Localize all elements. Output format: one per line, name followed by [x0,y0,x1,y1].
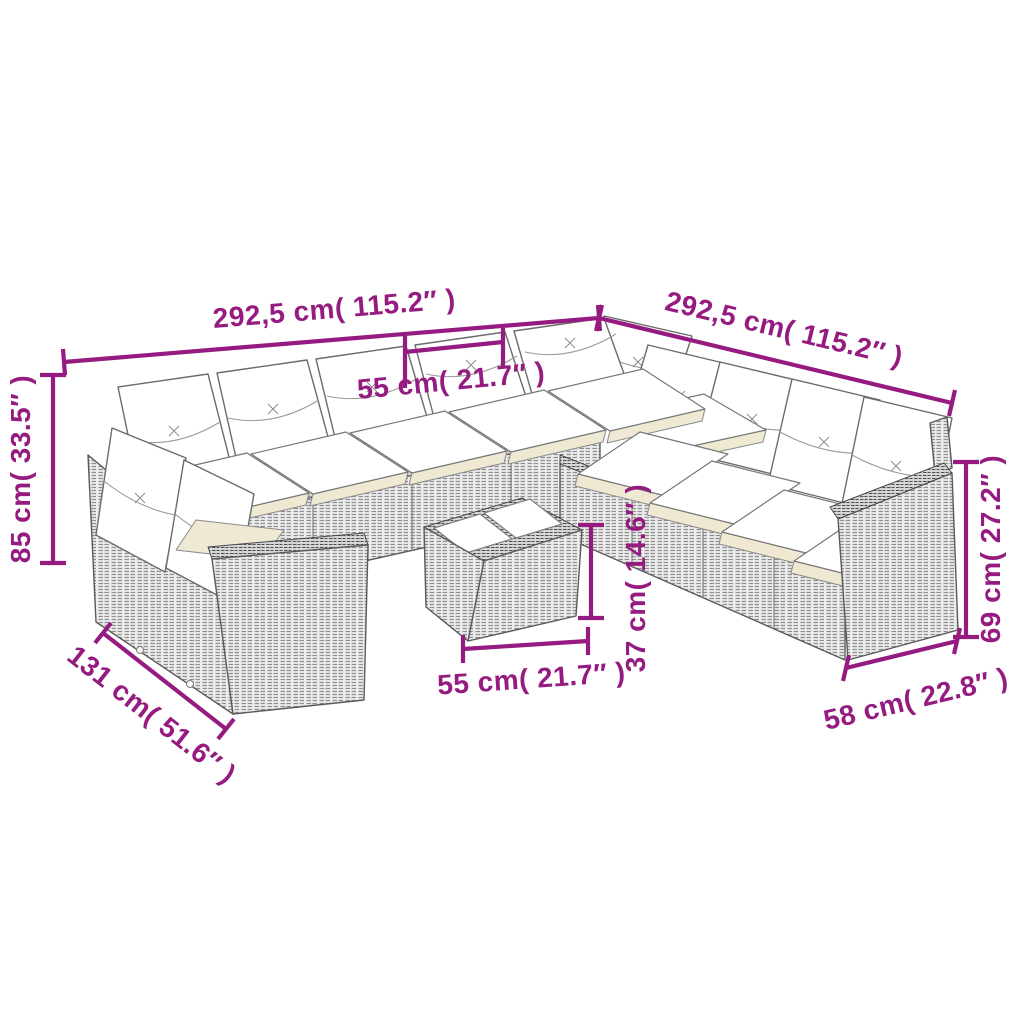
dim-table-width: 55 cm( 21.7″ ) [436,627,626,701]
dim-arm-depth-label: 58 cm( 22.8″ ) [821,662,1012,736]
product-dimension-diagram: 292,5 cm( 115.2″ ) 292,5 cm( 115.2″ ) 55… [0,0,1024,1024]
dim-total-height-label: 85 cm( 33.5″ ) [5,375,36,564]
dim-sofa-width-left-label: 292,5 cm( 115.2″ ) [212,283,457,334]
dim-table-width-label: 55 cm( 21.7″ ) [436,656,626,700]
dim-table-height-label: 37 cm( 14.6″ ) [620,484,651,673]
dim-arm-height-label: 69 cm( 27.2″ ) [975,455,1006,644]
diagram-canvas: 292,5 cm( 115.2″ ) 292,5 cm( 115.2″ ) 55… [0,0,1024,1024]
dim-total-height: 85 cm( 33.5″ ) [5,375,66,564]
dim-arm-height: 69 cm( 27.2″ ) [953,455,1006,644]
